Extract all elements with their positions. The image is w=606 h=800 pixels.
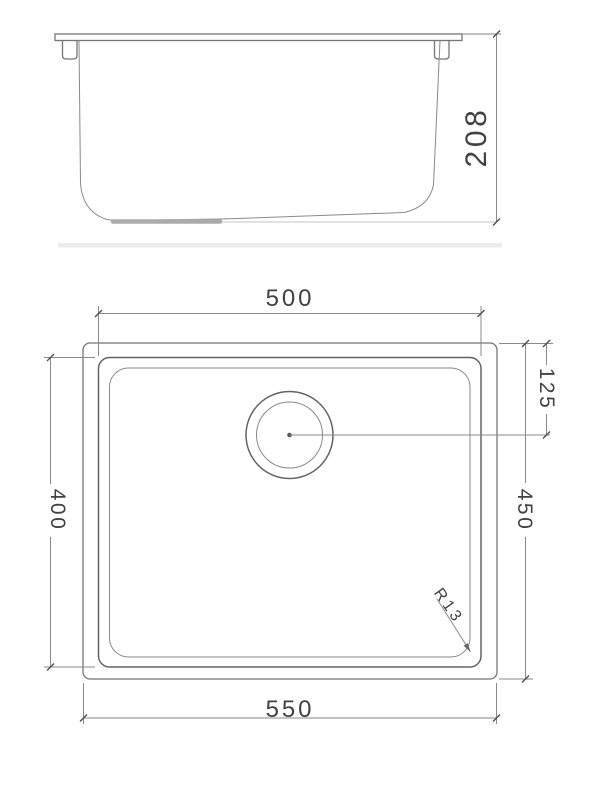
side-elevation-view xyxy=(55,31,502,248)
drawing-canvas xyxy=(0,0,606,800)
dim-label-overall-width: 550 xyxy=(240,698,340,722)
bowl-width-dimension xyxy=(95,306,485,356)
outer-edge-rect xyxy=(83,343,497,679)
scan-artifact-line xyxy=(58,243,502,248)
dim-label-drain-offset: 125 xyxy=(535,354,557,424)
sink-technical-drawing: 500 208 400 450 125 550 R13 xyxy=(0,0,606,800)
right-mounting-clip xyxy=(435,41,450,60)
bowl-inner-edge-rect xyxy=(110,368,471,657)
plan-view xyxy=(44,306,553,724)
dim-label-bowl-width: 500 xyxy=(240,287,340,311)
dim-label-overall-length: 450 xyxy=(513,470,535,550)
left-mounting-clip xyxy=(63,41,78,60)
sink-body-outline xyxy=(79,41,440,221)
dim-label-bowl-length: 400 xyxy=(46,470,68,550)
rim-bar xyxy=(55,34,462,41)
bowl-top-edge-rect xyxy=(99,358,482,668)
dim-label-side-height: 208 xyxy=(462,87,492,187)
